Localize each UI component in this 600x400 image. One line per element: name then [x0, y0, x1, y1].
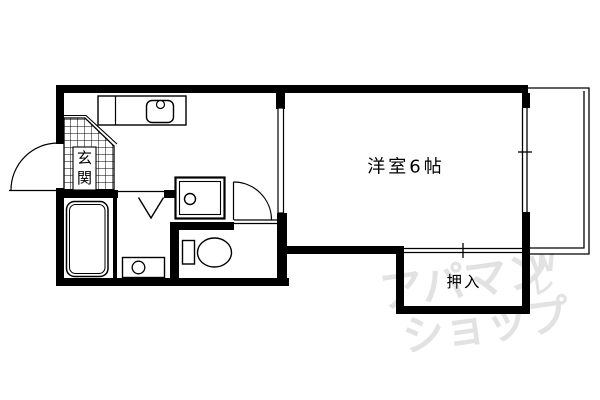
wall-toilet-top [170, 222, 234, 230]
wall-closet-left [396, 246, 404, 314]
toilet-bowl [198, 238, 232, 267]
wall-entry-a [56, 190, 118, 198]
sliding-door-panel [278, 108, 284, 213]
balcony-inner-rail [530, 91, 584, 248]
entrance-door-arc [11, 143, 58, 190]
doors [9, 143, 272, 220]
wall-entry-b [164, 190, 176, 198]
genkan-label-char1: 玄 [77, 149, 92, 167]
washing-machine-pan [123, 258, 165, 278]
wall-bath-divider [113, 197, 117, 278]
wall-right-lower [522, 212, 530, 314]
wall-room-bottom [277, 246, 404, 254]
wall-east-stub-upper [276, 93, 285, 109]
main-room-label: 洋室6帖 [367, 157, 444, 178]
toilet-door-arc [234, 182, 272, 220]
faucet-icon [157, 101, 165, 109]
wall-left-lower [56, 188, 64, 286]
wall-right-top-stub [522, 93, 530, 108]
floorplan-canvas: アパマン W レ ショップ [0, 0, 600, 400]
bath-door-triangle [139, 198, 164, 219]
toilet [183, 238, 232, 267]
genkan: 玄 関 [64, 116, 117, 191]
washbasin-outline [176, 178, 225, 219]
balcony-outer-rail [528, 88, 589, 254]
closet-label: 押入 [446, 273, 481, 291]
floorplan-drawing: アパマン W レ ショップ [0, 0, 600, 400]
toilet-tank [183, 241, 195, 265]
wall-toilet-left [170, 224, 179, 282]
wall-closet-bottom [396, 306, 530, 314]
watermark: アパマン W レ ショップ [377, 245, 573, 361]
kitchen-counter [98, 96, 186, 125]
washer-pan-outline [123, 258, 165, 278]
balcony [528, 88, 589, 254]
wall-top [56, 85, 528, 93]
genkan-label-char2: 関 [77, 169, 92, 187]
washbasin [176, 178, 225, 219]
wall-left-upper [56, 85, 64, 144]
bathtub [67, 202, 109, 277]
